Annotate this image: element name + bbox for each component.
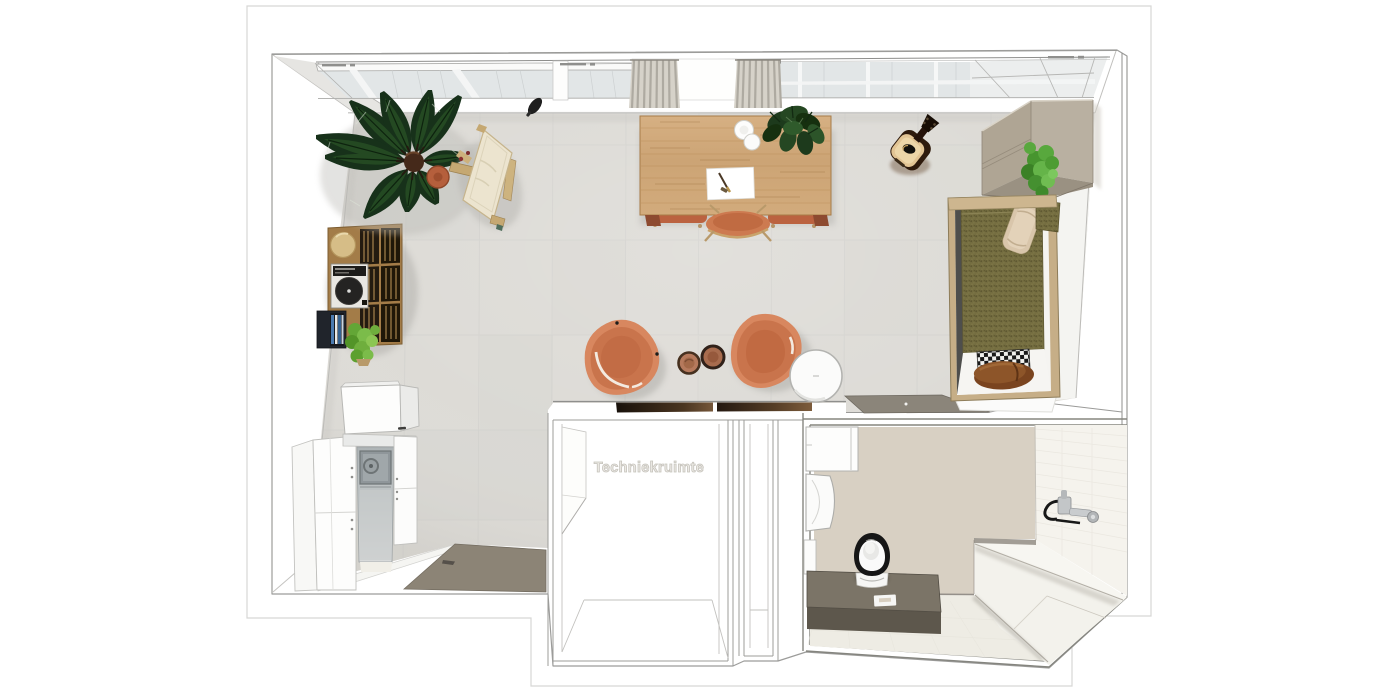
svg-text:Techniekruimte: Techniekruimte <box>594 460 704 476</box>
